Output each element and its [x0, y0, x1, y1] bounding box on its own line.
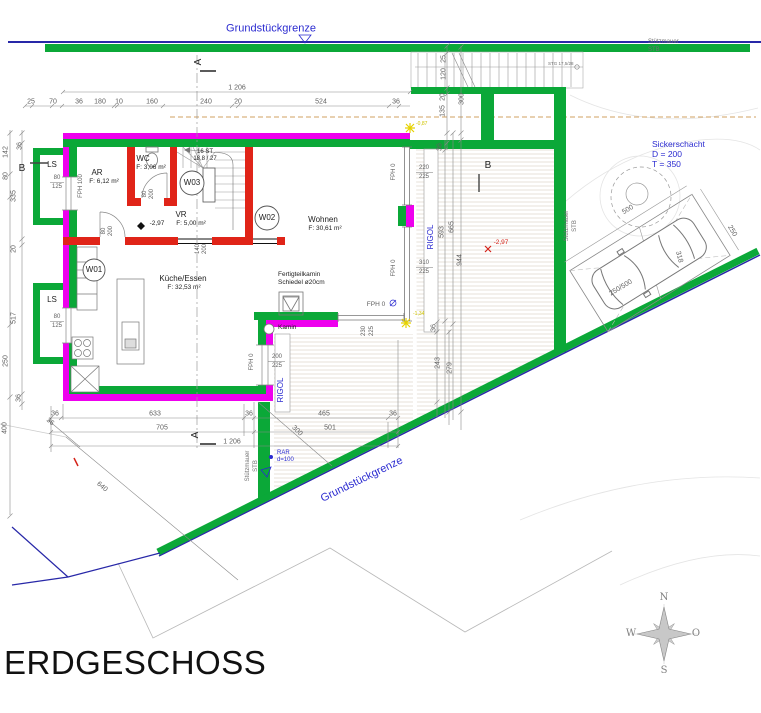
dim-b1-3: 465	[318, 411, 330, 418]
glazing	[338, 147, 412, 322]
fph0-d: FPH 0	[249, 353, 255, 370]
exterior-stair-note: STG 17,5/28	[548, 62, 574, 67]
dim-top-4: 10	[115, 99, 123, 106]
exterior-stairs	[411, 52, 583, 88]
dim-rm-2: 944	[457, 254, 464, 266]
retaining-label-2a: Stützmauer	[564, 211, 570, 242]
red-tick	[74, 458, 78, 466]
room-ar-area: F: 6,12 m²	[89, 179, 119, 186]
compass-w: W	[626, 629, 636, 639]
sickerschacht	[611, 167, 671, 227]
win-e2-h: 225	[419, 269, 429, 275]
rar-label-2: d=100	[277, 457, 294, 463]
dim-rm-3: 36	[431, 324, 438, 332]
dim-top-9: 36	[392, 99, 400, 106]
fph0-b: FPH 0	[391, 259, 397, 276]
sicker-label-2: D = 200	[652, 150, 682, 159]
tag-w01: W01	[86, 266, 102, 274]
dim-top-8: 524	[315, 99, 327, 106]
stairs-line1: 16 ST	[197, 149, 213, 155]
win-e1-w: 220	[419, 165, 429, 171]
win-k-h: 225	[272, 363, 282, 369]
dim-top-3: 180	[94, 99, 106, 106]
section-a-top: A	[194, 59, 204, 66]
ls2-w: 80	[54, 314, 61, 320]
survey-star-mid	[401, 318, 411, 328]
room-kueche-area: F: 32,53 m²	[167, 285, 200, 292]
retaining-label-3b: STB	[253, 460, 259, 472]
dim-top-6: 240	[200, 99, 212, 106]
win-e2-w: 310	[419, 260, 429, 266]
dim-li-3: 517	[11, 312, 18, 324]
door1-w: 80	[101, 228, 107, 235]
sicker-label-3: T = 350	[652, 160, 681, 169]
fph0-c: FPH 0	[367, 302, 385, 309]
stairs-line2: 18,8 / 27	[193, 156, 216, 162]
win-s-h: 225	[369, 326, 375, 336]
dim-lo-1: 80	[3, 172, 10, 180]
retaining-label-1a: Stützmauer	[648, 39, 679, 45]
dim-top-0: 25	[27, 99, 35, 106]
room-vr-area: F: 5,00 m²	[176, 221, 206, 228]
retaining-label-1b: STB	[648, 47, 660, 53]
retaining-label-2b: STB	[572, 220, 578, 232]
dim-top-total: 1 206	[228, 85, 246, 92]
dim-b1-0: 36	[51, 411, 59, 418]
door3-h: 200	[202, 244, 208, 254]
dim-rm-0: 593	[439, 226, 446, 238]
ls1-label: LS	[47, 161, 57, 169]
room-wohnen-name: Wohnen	[308, 216, 338, 224]
compass-o: O	[692, 629, 700, 639]
dim-rt-2: 20	[440, 93, 447, 101]
interior-walls	[63, 147, 285, 245]
rar-dot	[269, 455, 273, 459]
floor-plan-page: Grundstückgrenze Stützmauer STB STG 17,5…	[0, 0, 761, 713]
tag-w03: W03	[184, 179, 200, 187]
level-top: -0,87	[416, 122, 427, 127]
rigol-label-1: RIGOL	[427, 225, 435, 250]
room-wohnen-area: F: 30,61 m²	[308, 226, 341, 233]
section-b-left: B	[19, 164, 26, 174]
dim-top-7: 20	[234, 99, 242, 106]
ls1-h: 125	[52, 184, 62, 190]
dim-top-5: 160	[146, 99, 158, 106]
fph100-label: FPH 100	[78, 174, 84, 198]
dim-li-0: 36	[17, 142, 24, 150]
room-ar-name: AR	[91, 169, 102, 177]
dim-b-total: 1 206	[223, 439, 241, 446]
compass-s: S	[661, 666, 668, 676]
section-b-right: B	[485, 161, 492, 171]
compass-n: N	[660, 593, 669, 603]
room-wc-name: WC	[136, 155, 149, 163]
room-kueche-name: Küche/Essen	[159, 275, 206, 283]
fph0-a: FPH 0	[391, 163, 397, 180]
level-vr: -2,97	[150, 221, 165, 228]
door2-h: 200	[149, 189, 155, 199]
dim-lo-3: 400	[2, 422, 9, 434]
ls2-h: 125	[52, 323, 62, 329]
floor-plan-drawing	[0, 0, 761, 713]
dim-li-2: 20	[11, 245, 18, 253]
boundary-label-top: Grundstückgrenze	[226, 24, 316, 35]
dim-fraction-lines	[50, 173, 433, 362]
chimney-label: Kamin	[278, 325, 296, 332]
chimney-note-2: Schiedel ø20cm	[278, 280, 325, 287]
dim-b2-1: 501	[324, 425, 336, 432]
door1-h: 200	[108, 226, 114, 236]
section-a-bottom: A	[191, 432, 201, 439]
dim-li-4: 36	[16, 394, 23, 402]
win-k-w: 200	[272, 354, 282, 360]
dim-rt-5: 36	[437, 143, 444, 151]
level-terrace: -2,97	[494, 240, 509, 247]
dim-rt-1: 120	[441, 68, 448, 80]
dim-lo-2: 250	[3, 355, 10, 367]
door3-w: 140	[195, 244, 201, 254]
dim-rt-3: 135	[440, 105, 447, 117]
ls2-label: LS	[47, 296, 57, 304]
win-s-w: 230	[361, 326, 367, 336]
dim-lo-0: 142	[3, 146, 10, 158]
survey-star-top	[405, 123, 415, 133]
dim-rm-5: 279	[447, 362, 454, 374]
compass-icon	[631, 604, 697, 664]
dim-rt-0: 25	[441, 55, 448, 63]
room-wc-area: F: 3,06 m²	[136, 165, 166, 172]
neighbor-building-outline	[118, 548, 612, 638]
sicker-label-1: Sickerschacht	[652, 140, 705, 149]
dim-b2-0: 705	[156, 425, 168, 432]
level-diamond	[137, 222, 145, 230]
dim-b1-2: 36	[245, 411, 253, 418]
door-symbol	[390, 300, 396, 306]
dim-rt-4: 300	[459, 93, 466, 105]
dim-rm-1: 665	[449, 221, 456, 233]
dim-b1-1: 633	[149, 411, 161, 418]
door2-w: 80	[142, 191, 148, 198]
rar-label-1: RAR	[277, 450, 290, 456]
chimney-note-1: Fertigteilkamin	[278, 272, 320, 279]
room-vr-name: VR	[175, 211, 186, 219]
tag-w02: W02	[259, 214, 275, 222]
dim-top-2: 36	[75, 99, 83, 106]
ls1-w: 80	[54, 175, 61, 181]
win-e1-h: 225	[419, 174, 429, 180]
page-title: ERDGESCHOSS	[4, 646, 266, 679]
dim-b1-4: 36	[389, 411, 397, 418]
dim-li-1: 335	[11, 190, 18, 202]
retaining-label-3a: Stützmauer	[245, 451, 251, 482]
kitchen-fixtures	[71, 247, 144, 392]
rigol-label-2: RIGOL	[277, 378, 285, 403]
level-mid: -1,34	[413, 312, 424, 317]
dim-top-1: 70	[49, 99, 57, 106]
dim-rm-4: 243	[435, 357, 442, 369]
